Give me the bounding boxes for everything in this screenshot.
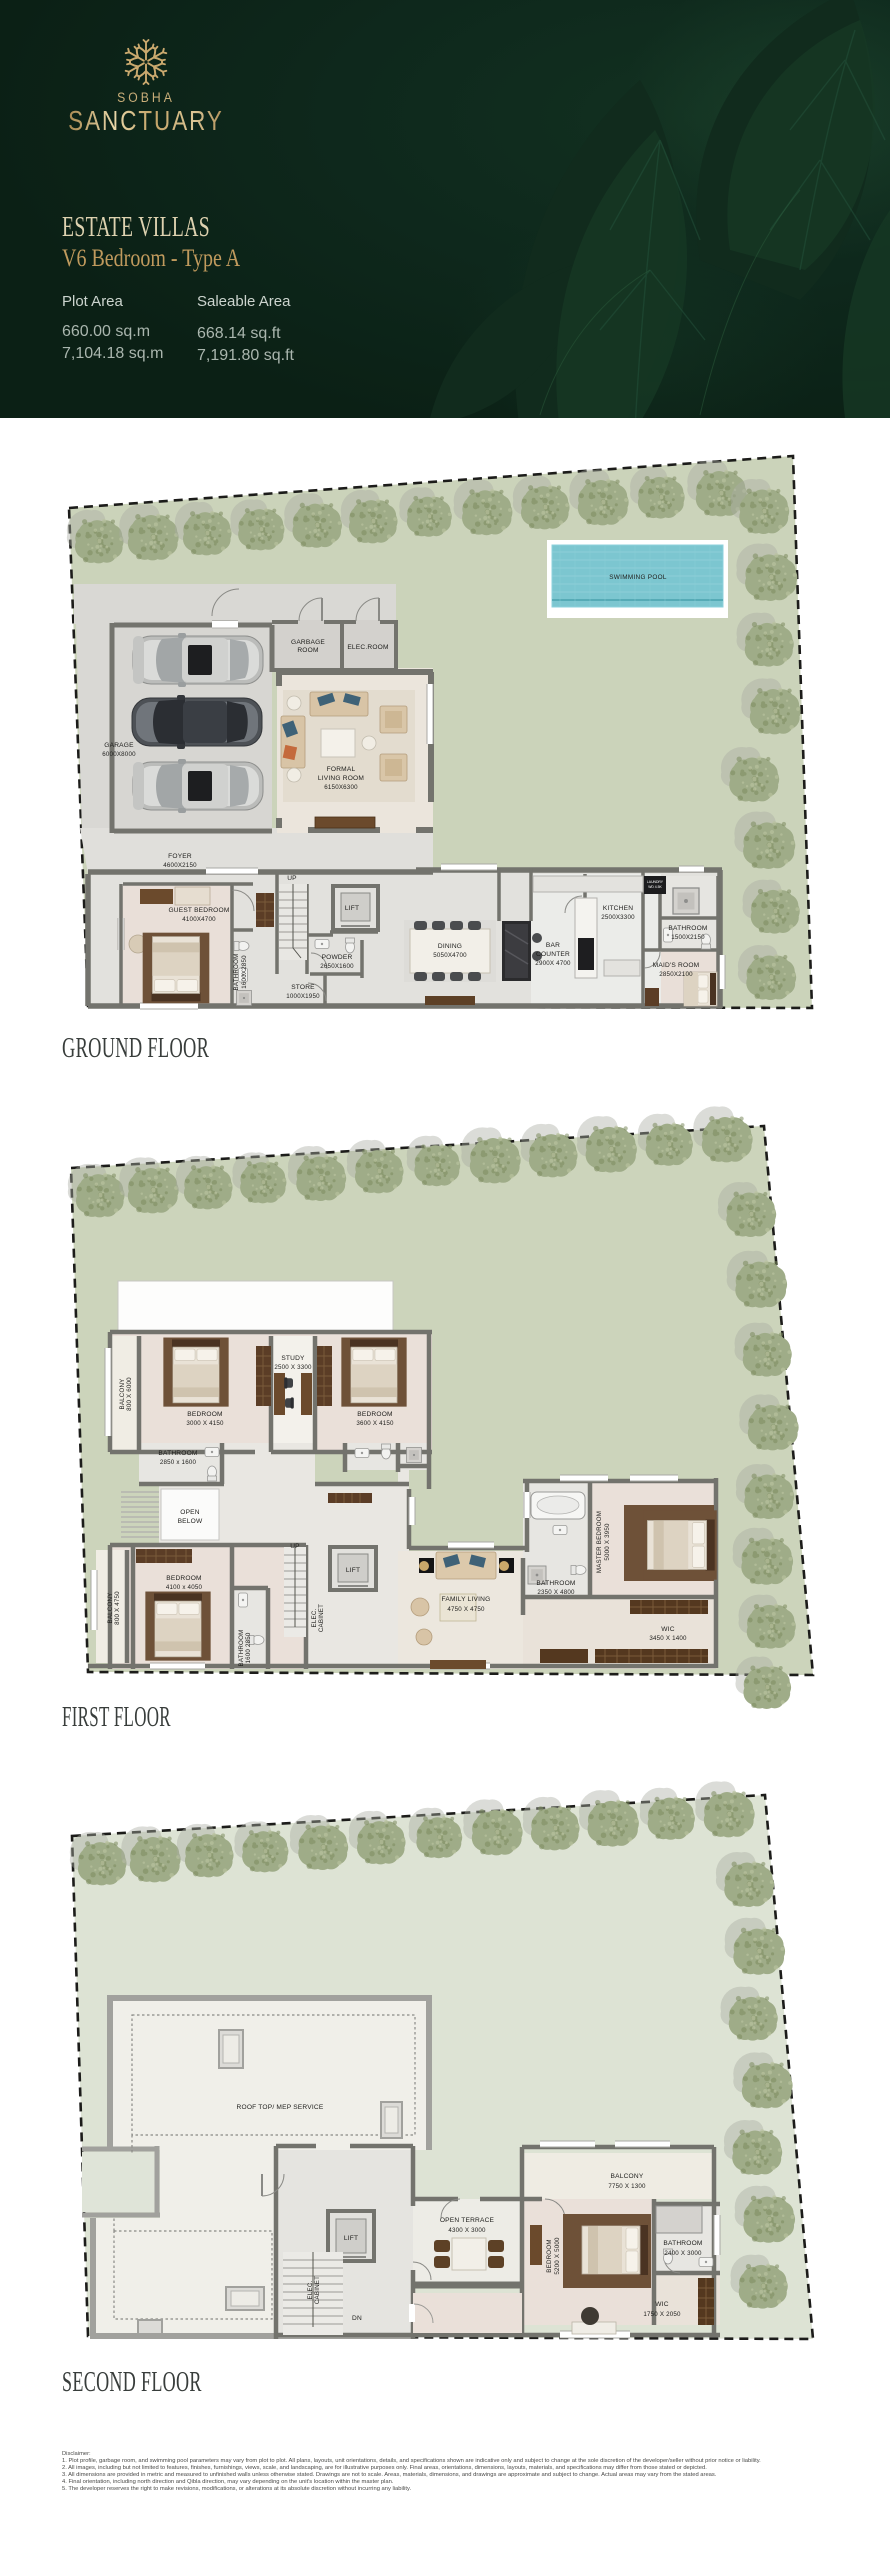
svg-text:1600X2850: 1600X2850 [241,955,248,989]
svg-text:6000X8000: 6000X8000 [102,751,136,758]
svg-text:ELEC.: ELEC. [311,1608,318,1627]
svg-text:SANCTUARY: SANCTUARY [68,106,224,136]
svg-text:CABINET: CABINET [318,1604,325,1632]
svg-text:BATHROOM: BATHROOM [668,925,707,932]
svg-text:BAR: BAR [546,942,560,949]
svg-text:2500X3300: 2500X3300 [601,914,635,921]
svg-text:OPEN TERRACE: OPEN TERRACE [440,2217,495,2224]
svg-text:STUDY: STUDY [281,1355,305,1362]
svg-text:OPEN: OPEN [180,1509,200,1516]
svg-text:BALCONY: BALCONY [611,2173,644,2180]
svg-text:WIC: WIC [661,1626,674,1633]
svg-text:ELEC.ROOM: ELEC.ROOM [347,644,388,651]
svg-text:ROOM: ROOM [297,647,318,654]
svg-text:KITCHEN: KITCHEN [603,905,633,912]
svg-text:BEDROOM: BEDROOM [357,1411,392,1418]
svg-text:GARAGE: GARAGE [104,742,134,749]
svg-text:GROUND FLOOR: GROUND FLOOR [62,1033,209,1064]
svg-text:4750 X 4750: 4750 X 4750 [447,1606,485,1613]
svg-text:BATHROOM: BATHROOM [238,1630,245,1667]
svg-text:CABINET: CABINET [314,2276,321,2304]
svg-text:5000 X 3950: 5000 X 3950 [604,1523,611,1561]
svg-text:1000X1950: 1000X1950 [286,993,320,1000]
svg-text:WD 4.5K: WD 4.5K [648,885,662,889]
svg-text:4300 X 3000: 4300 X 3000 [448,2227,486,2234]
svg-text:BELOW: BELOW [178,1518,203,1525]
svg-text:1750 X 2050: 1750 X 2050 [643,2311,681,2318]
svg-text:BATHROOM: BATHROOM [536,1580,575,1587]
svg-text:BATHROOM: BATHROOM [233,954,240,991]
svg-text:UP: UP [287,875,297,882]
svg-text:4100 x 4050: 4100 x 4050 [166,1584,203,1591]
svg-text:2350 X 4800: 2350 X 4800 [537,1589,575,1596]
svg-text:6150X6300: 6150X6300 [324,784,358,791]
svg-text:FIRST FLOOR: FIRST FLOOR [62,1702,171,1733]
svg-text:BEDROOM: BEDROOM [187,1411,222,1418]
svg-text:GUEST BEDROOM: GUEST BEDROOM [168,907,229,914]
svg-text:GARBAGE: GARBAGE [291,639,325,646]
svg-text:2400 X 3000: 2400 X 3000 [664,2250,702,2257]
svg-text:LIFT: LIFT [344,2235,358,2242]
svg-text:COUNTER: COUNTER [536,951,570,958]
svg-text:SWIMMING POOL: SWIMMING POOL [609,574,667,581]
svg-text:800 X 4750: 800 X 4750 [114,1591,121,1625]
svg-text:2650X1600: 2650X1600 [320,963,354,970]
svg-text:3450 X 1400: 3450 X 1400 [649,1635,687,1642]
svg-text:DINING: DINING [438,943,462,950]
svg-text:5200 X 5000: 5200 X 5000 [554,2237,561,2275]
svg-text:3600 X 4150: 3600 X 4150 [356,1420,394,1427]
svg-text:3000 X 4150: 3000 X 4150 [186,1420,224,1427]
svg-text:2900X 4700: 2900X 4700 [535,960,571,967]
svg-text:BALCONY: BALCONY [119,1379,126,1410]
svg-text:2500 X 3300: 2500 X 3300 [274,1364,312,1371]
svg-text:FORMAL: FORMAL [327,766,356,773]
svg-text:LIVING ROOM: LIVING ROOM [318,775,364,782]
svg-text:BATHROOM: BATHROOM [663,2240,702,2247]
svg-text:MAID'S ROOM: MAID'S ROOM [653,962,700,969]
svg-text:2850 x 1600: 2850 x 1600 [160,1459,197,1466]
svg-text:LAUNDRY: LAUNDRY [647,880,664,884]
svg-text:BEDROOM: BEDROOM [546,2239,553,2272]
svg-text:5050X4700: 5050X4700 [433,952,467,959]
svg-text:ELEC.: ELEC. [307,2280,314,2299]
svg-text:1600 2850: 1600 2850 [245,1632,252,1663]
svg-text:FAMILY LIVING: FAMILY LIVING [442,1596,491,1603]
svg-text:WIC: WIC [655,2301,668,2308]
svg-text:ROOF TOP/ MEP SERVICE: ROOF TOP/ MEP SERVICE [237,2104,324,2111]
svg-text:STORE: STORE [291,984,315,991]
svg-text:SECOND FLOOR: SECOND FLOOR [62,2367,202,2398]
svg-text:BALCONY: BALCONY [107,1593,114,1624]
svg-text:BEDROOM: BEDROOM [166,1575,201,1582]
svg-text:7750 X 1300: 7750 X 1300 [608,2183,646,2190]
svg-text:POWDER: POWDER [322,954,353,961]
svg-text:LIFT: LIFT [345,905,359,912]
svg-text:MASTER BEDROOM: MASTER BEDROOM [596,1511,603,1573]
svg-text:SOBHA: SOBHA [117,89,175,105]
svg-text:1500X2150: 1500X2150 [671,934,705,941]
svg-text:4600X2150: 4600X2150 [163,862,197,869]
svg-text:BATHROOM: BATHROOM [158,1450,197,1457]
svg-text:800 X 6000: 800 X 6000 [126,1377,133,1411]
svg-text:2850X2100: 2850X2100 [659,971,693,978]
svg-text:LIFT: LIFT [346,1567,360,1574]
svg-text:UP: UP [290,1543,300,1550]
svg-text:FOYER: FOYER [168,853,192,860]
svg-text:4100X4700: 4100X4700 [182,916,216,923]
svg-text:DN: DN [352,2315,362,2322]
